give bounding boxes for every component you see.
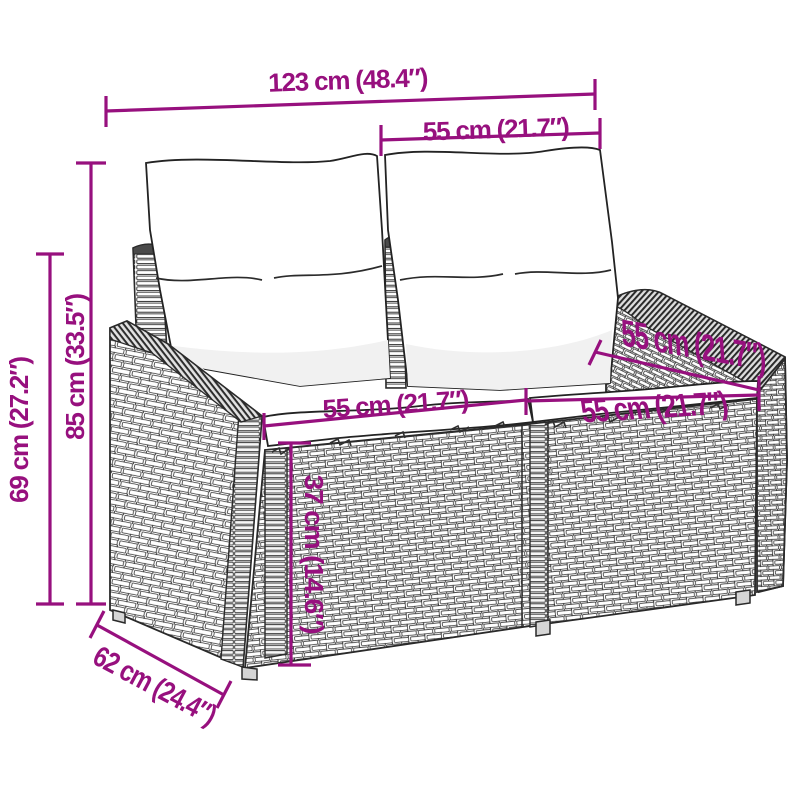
svg-text:37 cm (14.6″): 37 cm (14.6″)	[299, 475, 329, 634]
svg-text:55 cm (21.7″): 55 cm (21.7″)	[422, 111, 569, 146]
svg-text:123 cm (48.4″): 123 cm (48.4″)	[268, 62, 428, 98]
svg-text:85 cm (33.5″): 85 cm (33.5″)	[60, 294, 90, 440]
svg-text:69 cm (27.2″): 69 cm (27.2″)	[4, 357, 34, 503]
